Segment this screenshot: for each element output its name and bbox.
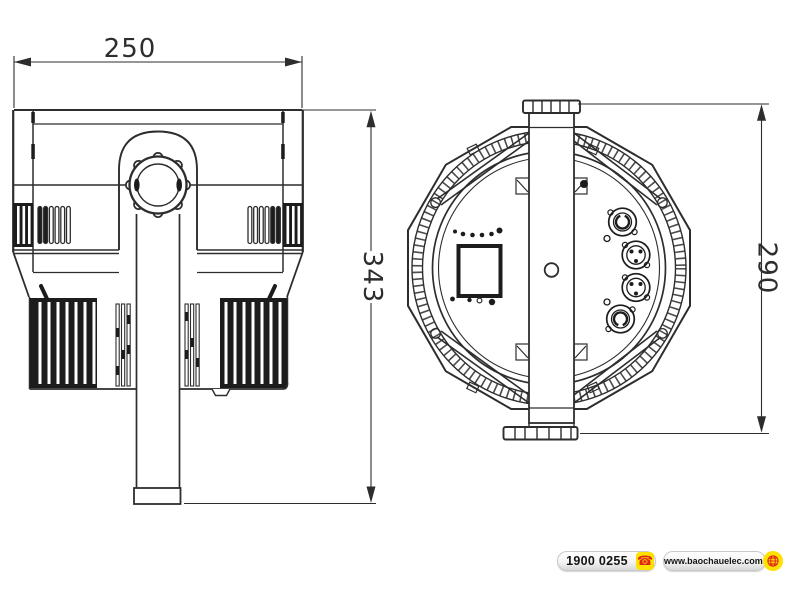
website-url: www.baochauelec.com [664,557,763,566]
watermark-footer: 1900 0255 ☎ www.baochauelec.com [557,551,766,571]
dmx-out-connector [622,274,650,302]
side-view-drawing: 250 [13,34,387,504]
powercon-in-connector [608,208,637,236]
yoke-knob [126,153,190,217]
blueprint-svg: 250 [0,0,800,600]
powercon-out-connector [606,305,635,333]
heatsink [30,297,288,396]
technical-drawing-page: 250 [0,0,800,600]
connector-panel [604,208,650,333]
top-clamp [523,101,580,114]
rear-screw-dot [580,180,588,188]
hotline-number: 1900 0255 [558,555,636,568]
rear-view-drawing: 290 [408,101,782,440]
globe-icon [763,551,783,571]
hotline-badge: 1900 0255 ☎ [557,551,656,571]
lcd-display [459,246,501,296]
dim-label-290: 290 [752,242,782,295]
housing-body [13,110,376,297]
center-hole [545,263,559,277]
bottom-clamp [504,423,578,440]
dim-label-343: 343 [357,251,387,304]
dmx-in-connector [622,241,650,269]
phone-icon: ☎ [636,552,654,570]
display-panel [450,228,502,306]
dim-label-250: 250 [104,34,157,64]
dimension-width-250: 250 [14,34,302,108]
yoke-foot [134,488,181,504]
website-badge: www.baochauelec.com [663,551,766,571]
